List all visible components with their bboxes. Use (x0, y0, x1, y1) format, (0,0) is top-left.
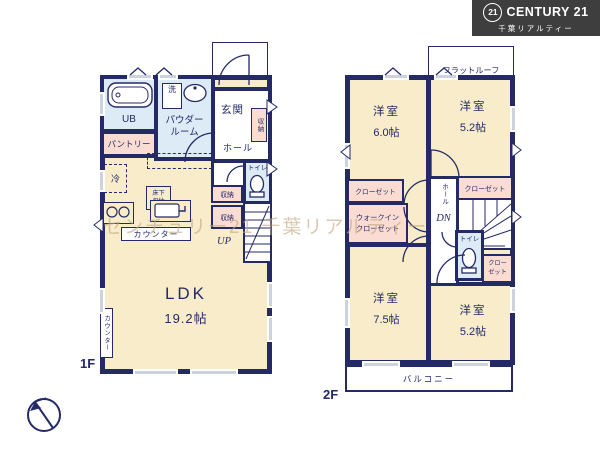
window (98, 288, 105, 314)
ldk-size: 19.2帖 (100, 308, 272, 327)
balcony: バルコニー (345, 365, 513, 392)
window (267, 316, 274, 342)
floorplan-canvas: 21 CENTURY 21 千葉リアルティー UB 洗 パウダー ルーム 玄関 … (0, 0, 600, 450)
badge-number: 21 (488, 7, 497, 17)
room-entrance-hall: 玄関 ホール 収納 (211, 87, 272, 163)
window (383, 73, 409, 80)
window (133, 369, 178, 376)
storage-b: 収納 (211, 205, 243, 229)
sink-icon (182, 83, 208, 103)
wash-label: 洗 (168, 84, 176, 95)
company-name: 千葉リアルティー (498, 23, 573, 34)
floor1-label: 1F (80, 356, 95, 371)
room-label-ub: UB (104, 114, 154, 127)
hall-label-2f: ホール (431, 183, 456, 206)
room-unit-bath: UB (100, 75, 158, 133)
window (158, 73, 178, 80)
room-west-bedroom-top: 洋室 6.0帖 (345, 103, 428, 140)
window (190, 369, 238, 376)
storage-a: 収納 (211, 185, 243, 203)
window (343, 298, 350, 328)
closet-southeast: クロー ゼット (482, 254, 513, 283)
room-toilet-2f: トイレ (455, 230, 484, 281)
stairs-1f (243, 202, 272, 263)
window (510, 287, 517, 313)
window (362, 361, 400, 368)
fridge-space: 冷 (104, 164, 127, 193)
washing-machine-icon: 洗 (162, 83, 182, 109)
bathtub-icon (106, 81, 154, 109)
stairs-up-label: UP (208, 236, 240, 247)
room-east-bedroom-top: 洋室 5.2帖 (431, 98, 515, 135)
room-toilet-1f: トイレ (243, 160, 272, 204)
window (343, 143, 350, 169)
window (98, 170, 105, 192)
walk-in-closet: ウォークイン クローゼット (347, 203, 408, 244)
window (98, 92, 105, 116)
brand-name: CENTURY 21 (506, 5, 588, 19)
floor2-label: 2F (323, 387, 338, 402)
entrance-storage: 収納 (251, 108, 267, 142)
ldk-name: LDK (100, 284, 272, 304)
kitchen-counter-label: カウンター (121, 227, 191, 241)
window (452, 361, 490, 368)
closet-west: クローゼット (347, 179, 404, 203)
closet-east: クローゼット (457, 176, 513, 200)
room-label-powder: パウダー ルーム (158, 115, 211, 139)
room-powder: 洗 パウダー ルーム (154, 75, 215, 161)
window (434, 73, 458, 80)
room-east-bedroom-bottom: 洋室 5.2帖 (431, 302, 515, 339)
toilet-label-2f: トイレ (458, 236, 481, 244)
room-ldk: LDK 19.2帖 (100, 284, 272, 327)
century21-badge-icon: 21 (483, 3, 502, 22)
side-counter: カウンター (100, 308, 113, 358)
toilet-icon-1f (246, 173, 268, 199)
room-label-hall: ホール (223, 143, 253, 154)
toilet-icon-2f (458, 246, 480, 276)
toilet-label-1f: トイレ (246, 165, 269, 173)
stairs-down-label: DN (431, 213, 456, 224)
stove-icon (103, 202, 134, 224)
window (510, 106, 517, 132)
room-west-bedroom-bottom: 洋室 7.5帖 (345, 290, 428, 327)
window (267, 282, 274, 308)
kitchen-cabinet-dashed (147, 153, 212, 169)
century21-logo: 21 CENTURY 21 千葉リアルティー (472, 0, 600, 36)
room-label-entrance: 玄関 (221, 104, 244, 117)
compass-north-icon (28, 398, 60, 431)
kitchen-sink-icon (150, 200, 191, 222)
window (127, 73, 153, 80)
